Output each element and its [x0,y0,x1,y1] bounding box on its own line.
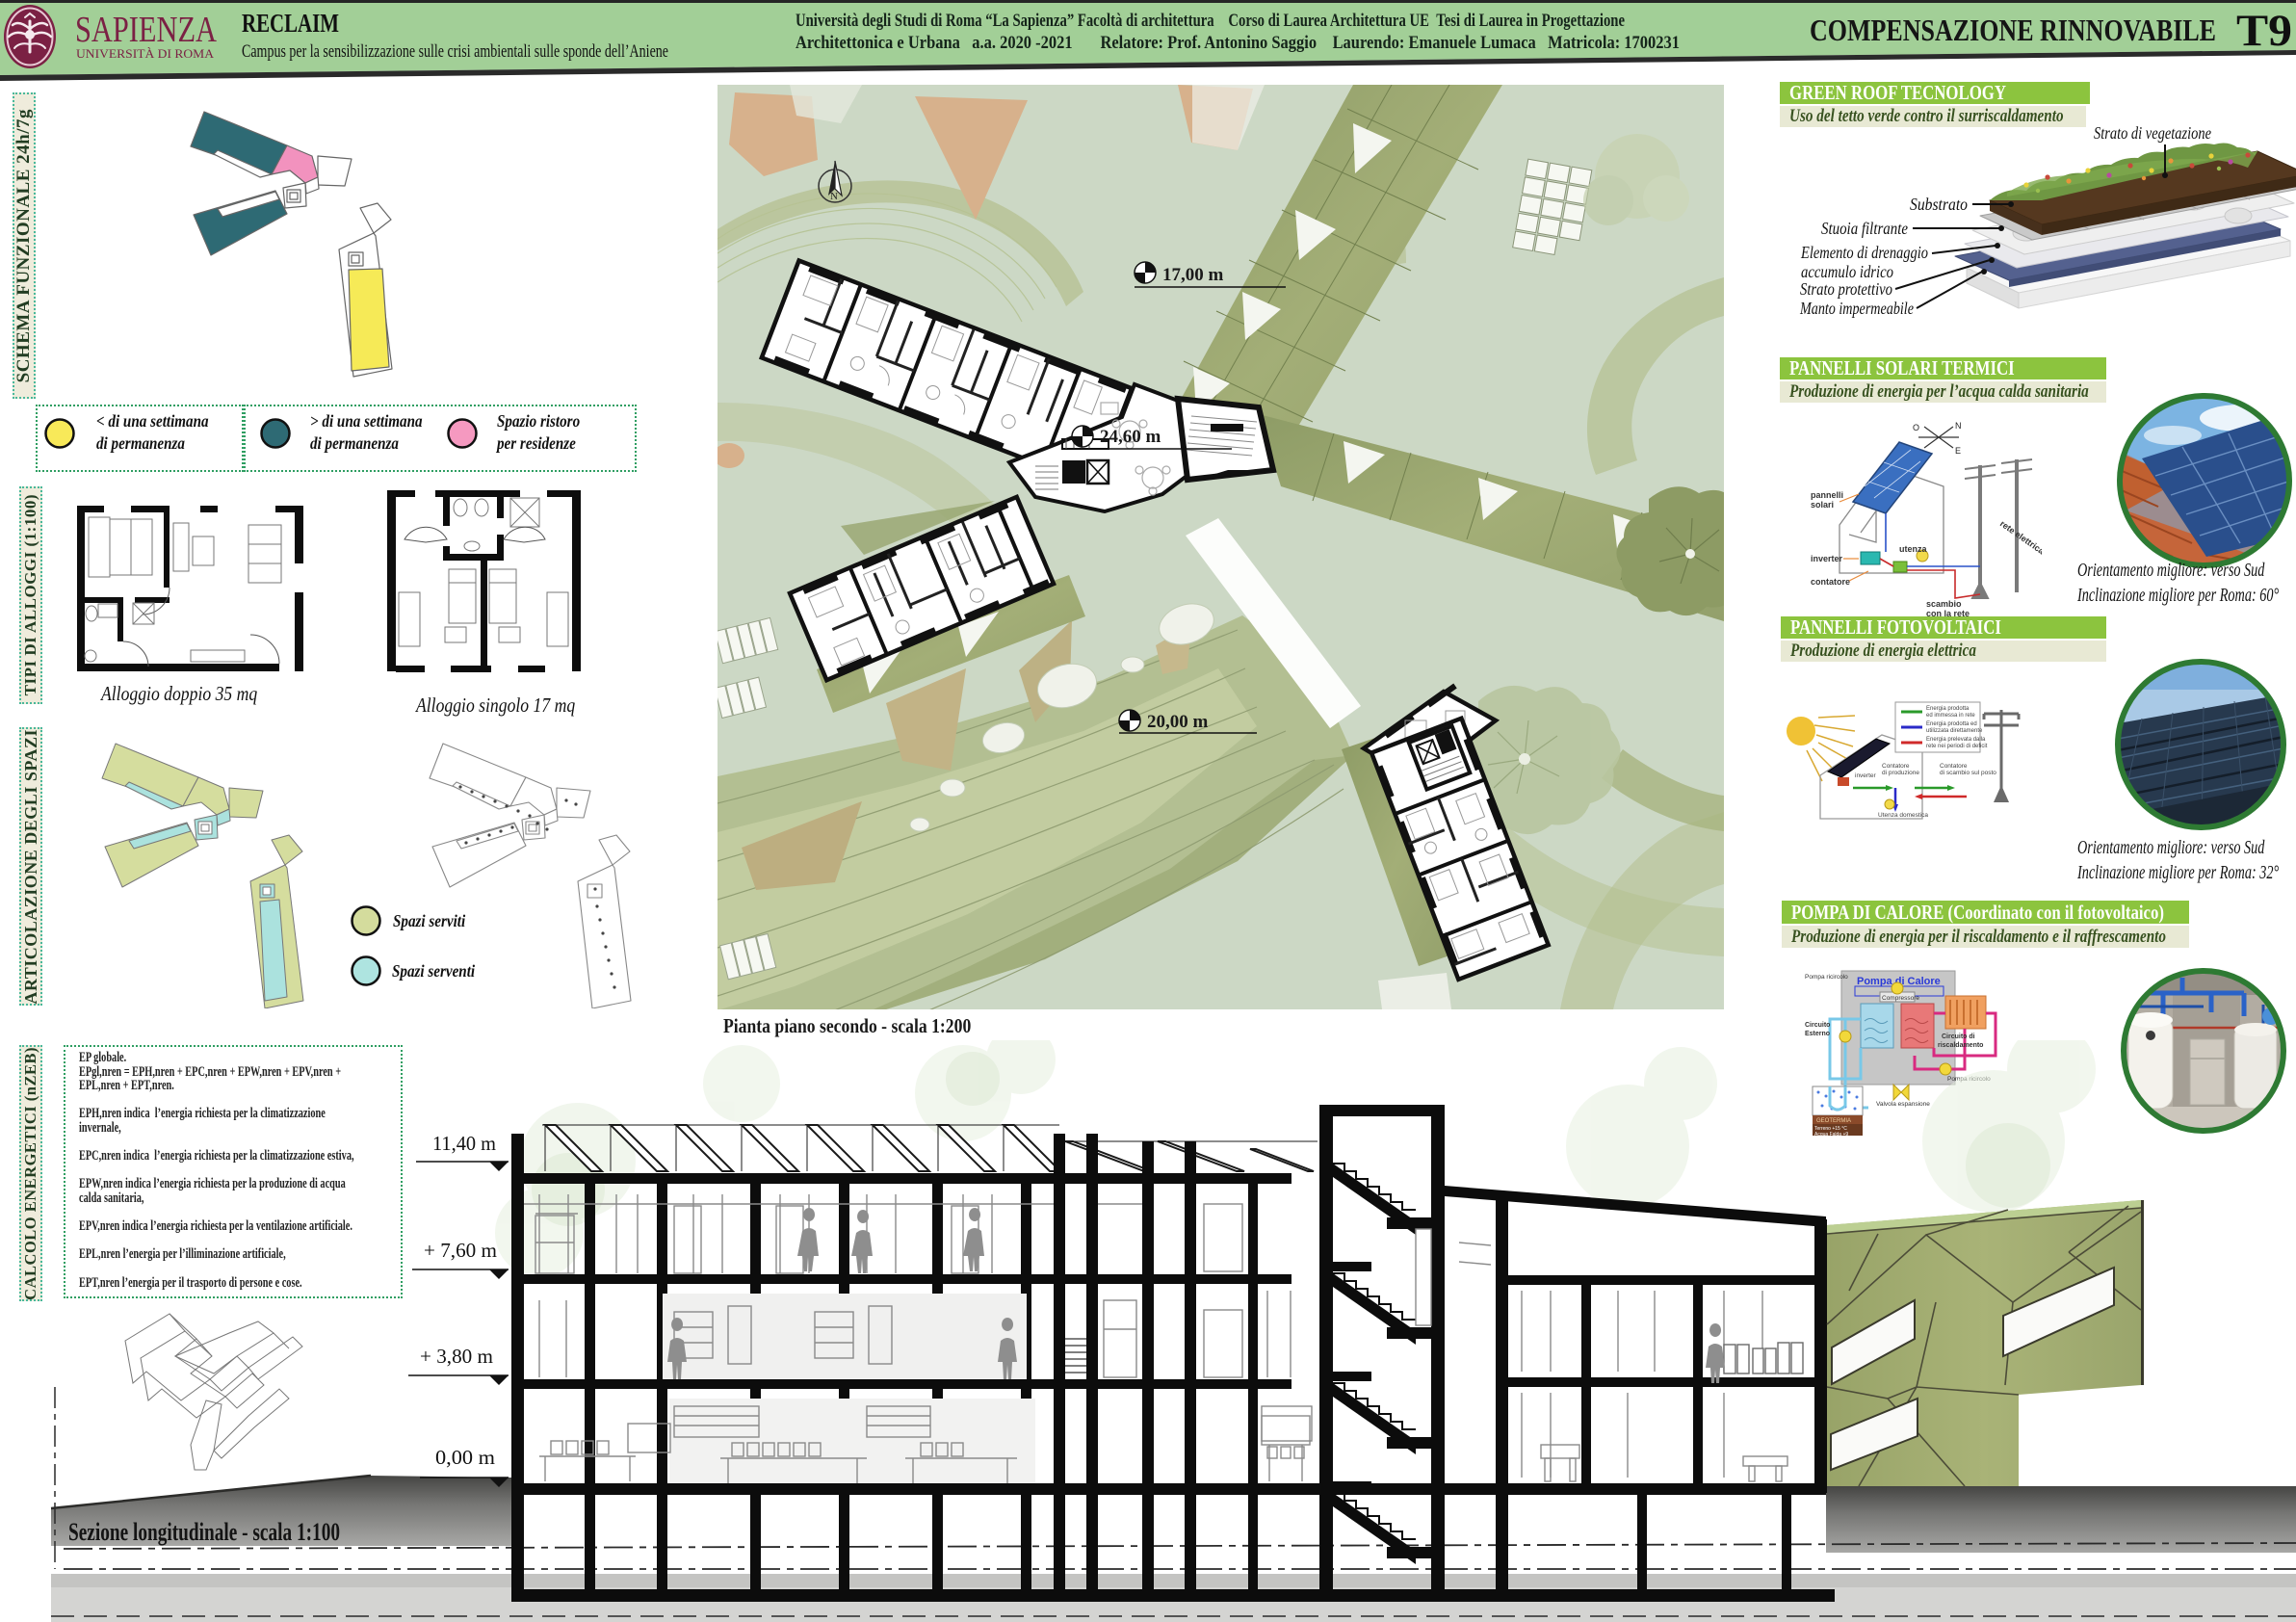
svg-text:T9: T9 [2236,6,2292,56]
svg-text:accumulo idrico: accumulo idrico [1801,262,1893,281]
svg-text:Campus per la sensibilizzazion: Campus per la sensibilizzazione sulle cr… [242,41,668,62]
svg-text:rete elettrica: rete elettrica [1998,518,2042,556]
svg-text:scambio: scambio [1926,599,1962,609]
svg-text:Architettonica e Urbana a.a.: Architettonica e Urbana a.a. 2020 -2021 … [796,33,1680,53]
svg-text:N: N [1955,421,1962,431]
svg-text:contatore: contatore [1811,577,1850,587]
svg-text:Circuito: Circuito [1805,1022,1830,1029]
svg-text:di scambio sul posto: di scambio sul posto [1940,770,1996,776]
svg-text:+ 3,80 m: + 3,80 m [420,1345,493,1368]
svg-text:di produzione: di produzione [1882,770,1919,776]
svg-text:Substrato: Substrato [1910,195,1968,214]
svg-text:Contatore: Contatore [1940,763,1968,770]
svg-text:inverter: inverter [1855,772,1877,779]
svg-text:UNIVERSITÀ DI ROMA: UNIVERSITÀ DI ROMA [76,46,215,61]
svg-text:RECLAIM: RECLAIM [242,9,339,38]
svg-text:Esterno: Esterno [1805,1031,1830,1037]
svg-text:Pompa ricircolo: Pompa ricircolo [1805,974,1848,981]
svg-text:Circuito di: Circuito di [1942,1033,1975,1040]
svg-text:Strato di vegetazione: Strato di vegetazione [2094,125,2211,143]
svg-text:Contatore: Contatore [1882,763,1910,770]
svg-text:Utenza domestica: Utenza domestica [1878,812,1928,819]
svg-text:rete nei periodi di deficit: rete nei periodi di deficit [1926,744,1988,749]
svg-text:utilizzata direttamente: utilizzata direttamente [1926,728,1983,734]
svg-text:E: E [1955,446,1961,456]
svg-text:0,00 m: 0,00 m [435,1446,495,1469]
svg-text:24,60 m: 24,60 m [1100,427,1161,447]
svg-text:Energia prodotta ed: Energia prodotta ed [1926,721,1977,727]
svg-text:Manto impermeabile: Manto impermeabile [1799,299,1914,318]
svg-text:inverter: inverter [1811,554,1843,563]
svg-text:Sezione longitudinale - scala: Sezione longitudinale - scala 1:100 [68,1518,340,1546]
svg-text:17,00 m: 17,00 m [1162,265,1224,285]
svg-text:O: O [1913,423,1919,432]
svg-text:solari: solari [1811,500,1834,510]
svg-text:pannelli: pannelli [1811,490,1843,500]
svg-text:Elemento di drenaggio: Elemento di drenaggio [1800,243,1928,262]
svg-text:COMPENSAZIONE RINNOVABILE: COMPENSAZIONE RINNOVABILE [1810,13,2216,47]
svg-text:Stuoia filtrante: Stuoia filtrante [1821,219,1908,238]
svg-text:Compressore: Compressore [1882,995,1919,1002]
svg-text:11,40 m: 11,40 m [432,1132,496,1155]
svg-text:Università degli Studi di Roma: Università degli Studi di Roma “La Sapie… [796,11,1625,31]
svg-text:Energia prelevata dalla: Energia prelevata dalla [1926,737,1986,743]
svg-text:+ 7,60 m: + 7,60 m [424,1239,497,1262]
svg-text:N: N [830,191,838,202]
svg-text:Strato protettivo: Strato protettivo [1800,279,1892,299]
svg-text:20,00 m: 20,00 m [1147,712,1209,732]
svg-text:ed immessa in rete: ed immessa in rete [1926,713,1975,719]
svg-text:Energia prodotta: Energia prodotta [1926,706,1970,712]
svg-text:utenza: utenza [1899,544,1927,554]
svg-text:SAPIENZA: SAPIENZA [75,10,217,50]
